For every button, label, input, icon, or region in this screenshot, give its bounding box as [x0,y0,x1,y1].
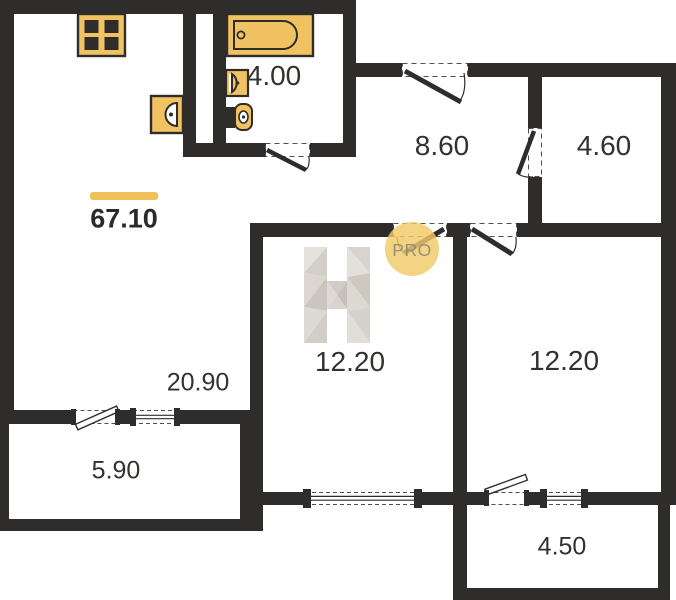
room-area-label-balcony-left: 5.90 [92,459,141,484]
door-bathroom [266,144,310,171]
room-area-label-balcony-right: 4.50 [538,535,587,560]
room-area-label-living-kitchen: 20.90 [167,371,230,396]
window-bedroom-left [303,489,422,508]
pro-badge-label: PRO [392,240,431,260]
toilet-icon [226,104,252,130]
door-storage [518,129,542,178]
room-area-label-storage: 4.60 [577,132,632,160]
floor-plan-drawing: PRO [0,0,676,600]
pro-badge: PRO [385,222,439,276]
balcony-door-bedroom [484,474,529,506]
room-area-label-bathroom: 4.00 [247,62,302,90]
window-living [130,408,180,426]
room-area-label-hallway: 8.60 [415,132,470,160]
kitchen-sink-icon [151,96,183,133]
floor-plan: PRO 67.10 4.00 8.60 4.60 12.20 12.20 20.… [0,0,676,600]
total-area-underline [90,192,158,200]
bathtub-icon [227,14,313,56]
bathroom-sink-icon [226,70,248,96]
balcony-door-living [71,406,120,430]
door-entrance [403,64,468,103]
room-area-label-bedroom-right: 12.20 [529,347,599,375]
room-area-label-bedroom-left: 12.20 [315,348,385,376]
door-bedroom-right [471,224,517,255]
h-logo-watermark [304,247,370,343]
total-area-label: 67.10 [90,206,158,233]
window-bedroom-right [540,489,588,508]
stove-icon [78,14,125,56]
